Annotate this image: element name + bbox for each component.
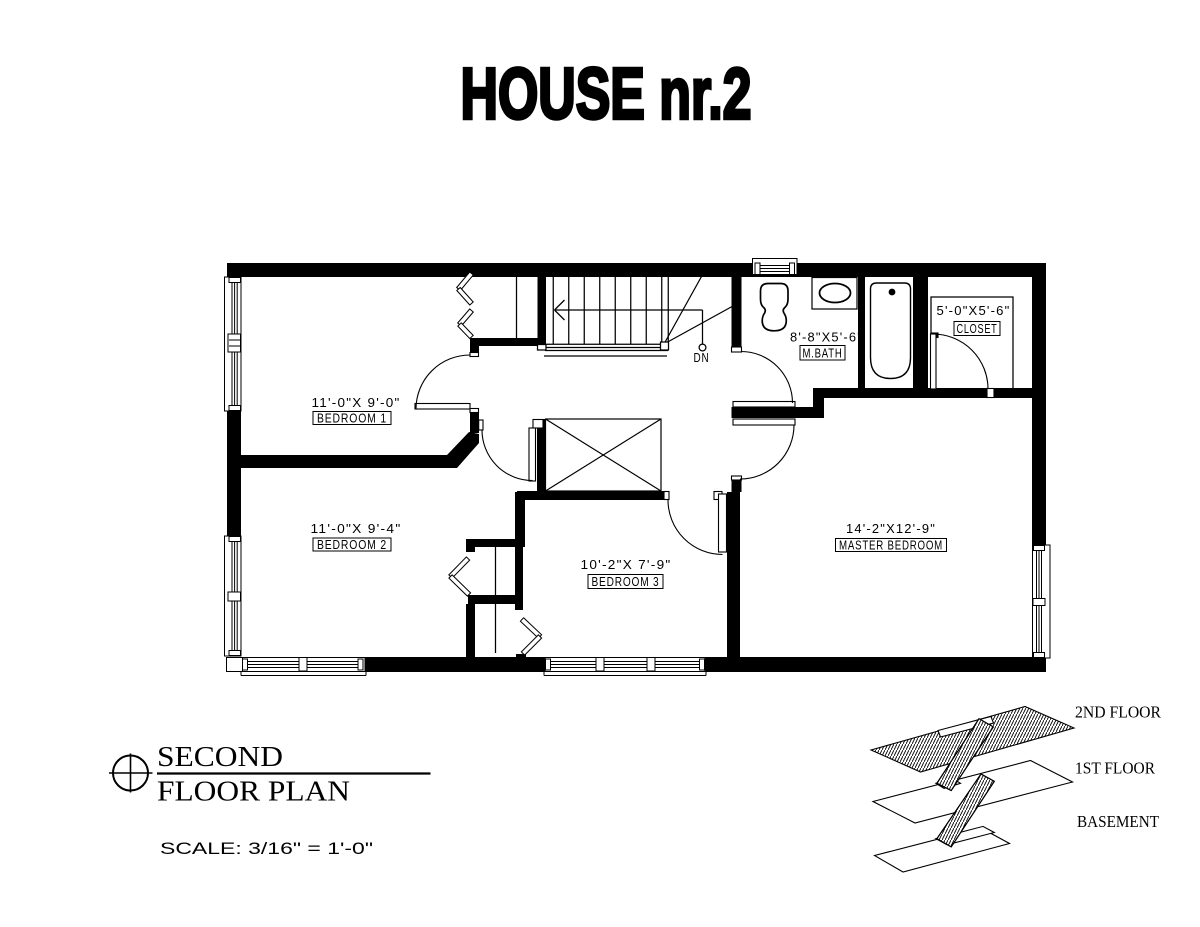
- svg-text:DN: DN: [694, 351, 710, 365]
- svg-text:BEDROOM 2: BEDROOM 2: [317, 538, 387, 552]
- svg-text:M.BATH: M.BATH: [803, 347, 843, 361]
- svg-text:2ND FLOOR: 2ND FLOOR: [1075, 703, 1162, 722]
- svg-text:5'-0"X5'-6": 5'-0"X5'-6": [937, 303, 1011, 318]
- svg-text:HOUSE nr.2: HOUSE nr.2: [461, 55, 752, 135]
- svg-text:MASTER BEDROOM: MASTER BEDROOM: [839, 539, 943, 553]
- svg-text:FLOOR PLAN: FLOOR PLAN: [157, 777, 350, 808]
- svg-text:11'-0"X 9'-4": 11'-0"X 9'-4": [311, 521, 402, 536]
- svg-text:SECOND: SECOND: [157, 742, 283, 773]
- svg-text:SCALE: 3/16" = 1'-0": SCALE: 3/16" = 1'-0": [160, 839, 373, 858]
- svg-text:8'-8"X5'-6": 8'-8"X5'-6": [790, 330, 863, 345]
- svg-text:1ST FLOOR: 1ST FLOOR: [1075, 759, 1156, 778]
- svg-text:BASEMENT: BASEMENT: [1077, 812, 1160, 831]
- svg-text:14'-2"X12'-9": 14'-2"X12'-9": [846, 521, 936, 536]
- svg-text:10'-2"X 7'-9": 10'-2"X 7'-9": [581, 557, 672, 572]
- svg-text:BEDROOM 3: BEDROOM 3: [592, 575, 660, 589]
- svg-text:11'-0"X 9'-0": 11'-0"X 9'-0": [312, 395, 401, 410]
- svg-text:BEDROOM 1: BEDROOM 1: [317, 412, 387, 426]
- svg-text:CLOSET: CLOSET: [957, 322, 998, 336]
